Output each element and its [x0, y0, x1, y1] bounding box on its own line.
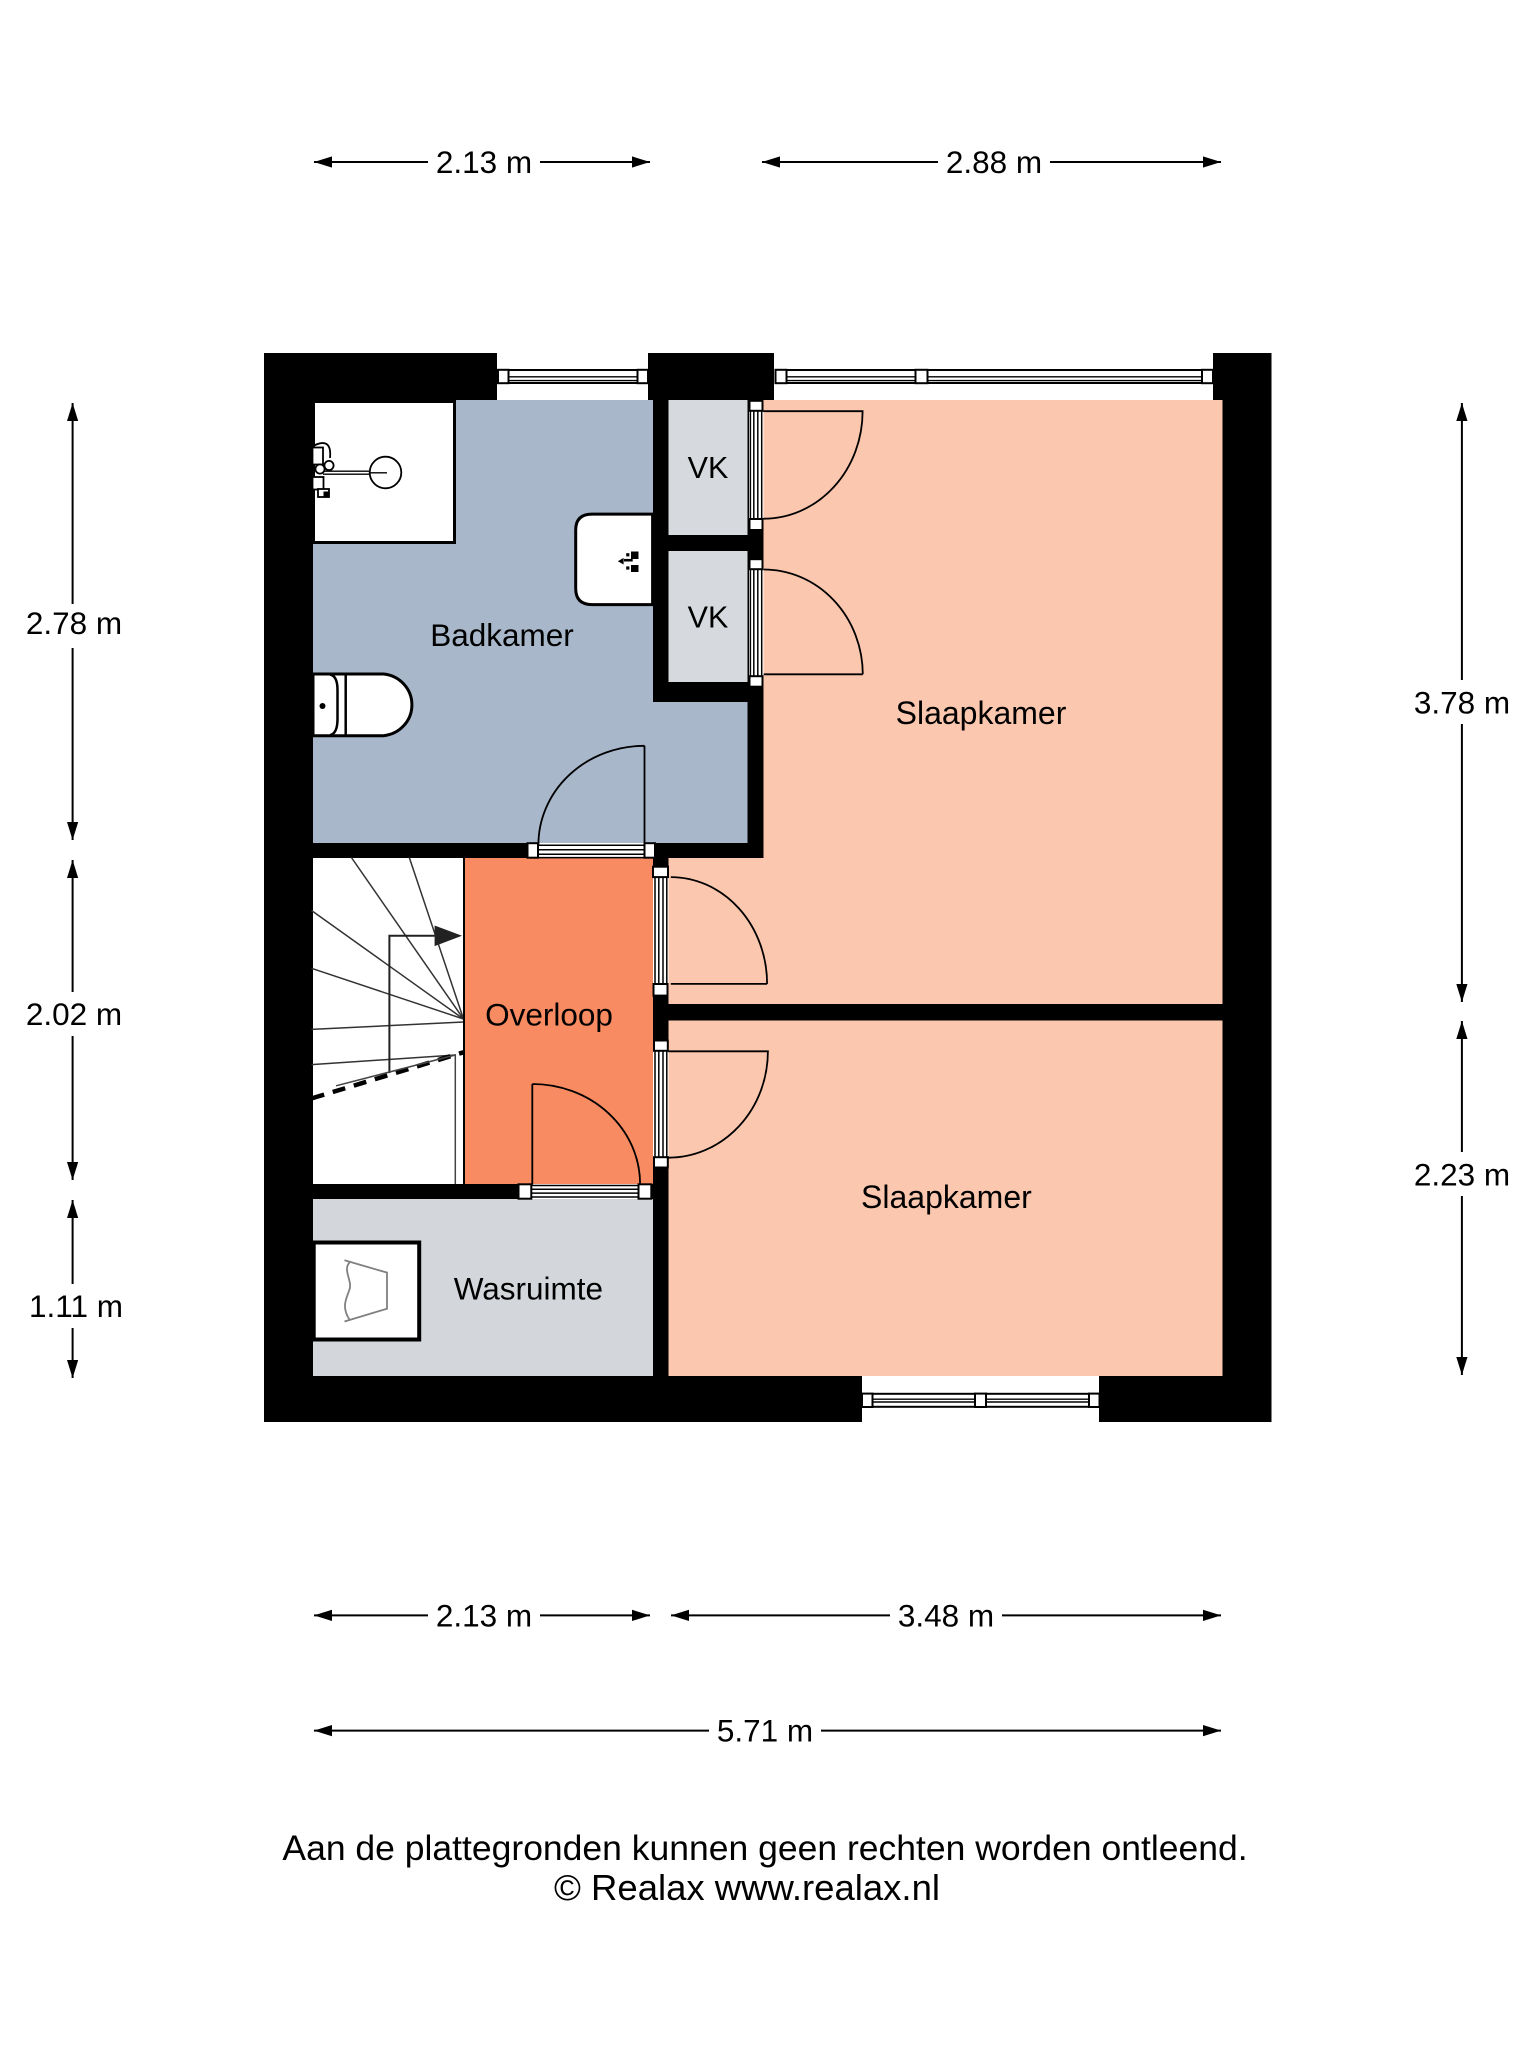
svg-text:2.23 m: 2.23 m [1414, 1157, 1510, 1193]
svg-text:3.48 m: 3.48 m [898, 1598, 994, 1634]
svg-text:Slaapkamer: Slaapkamer [896, 695, 1067, 731]
svg-text:Badkamer: Badkamer [430, 617, 574, 653]
svg-text:2.13 m: 2.13 m [436, 144, 532, 180]
svg-text:© Realax www.realax.nl: © Realax www.realax.nl [554, 1867, 940, 1908]
svg-text:Wasruimte: Wasruimte [454, 1271, 603, 1307]
svg-text:Slaapkamer: Slaapkamer [861, 1179, 1032, 1215]
svg-text:VK: VK [688, 451, 729, 485]
svg-text:VK: VK [688, 601, 729, 635]
svg-text:Overloop: Overloop [485, 997, 613, 1033]
svg-text:2.13 m: 2.13 m [436, 1598, 532, 1634]
svg-text:5.71 m: 5.71 m [717, 1713, 813, 1749]
svg-text:2.02 m: 2.02 m [26, 996, 122, 1032]
svg-text:2.78 m: 2.78 m [26, 605, 122, 641]
svg-text:Aan de plattegronden kunnen ge: Aan de plattegronden kunnen geen rechten… [282, 1828, 1247, 1868]
svg-text:3.78 m: 3.78 m [1414, 685, 1510, 721]
svg-text:2.88 m: 2.88 m [946, 144, 1042, 180]
svg-text:1.11 m: 1.11 m [29, 1288, 123, 1324]
